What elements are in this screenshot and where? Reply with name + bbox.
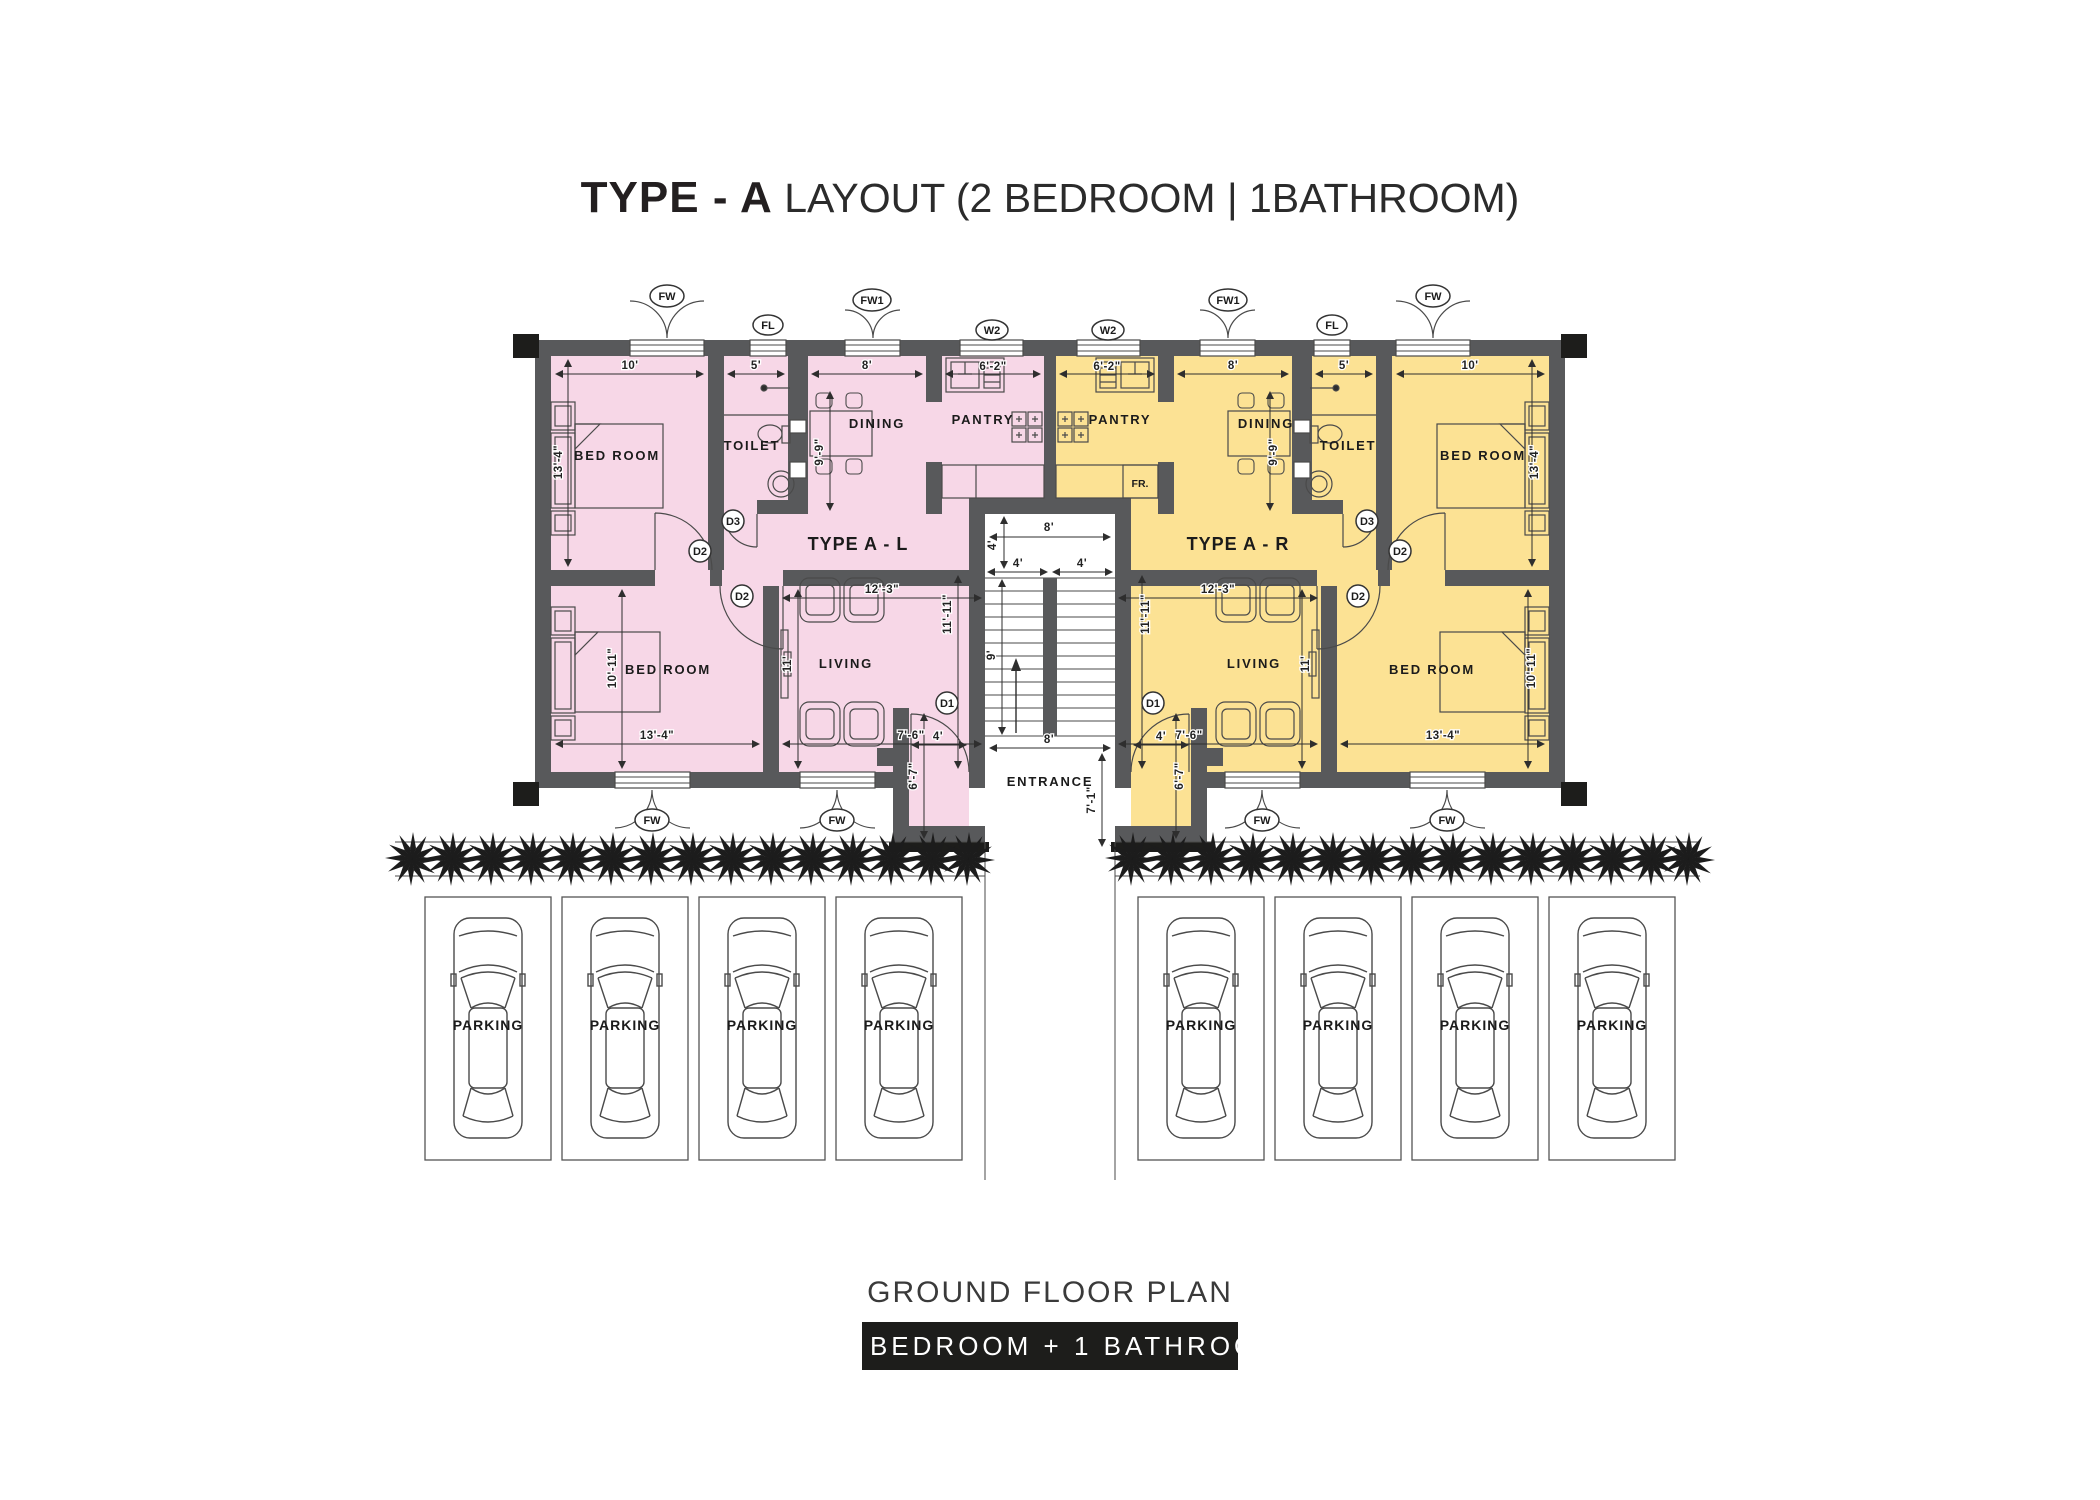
door-label-d1: D1: [1146, 698, 1160, 710]
dim-label: 10'-11": [607, 648, 619, 688]
dim-label: 7'-6": [897, 730, 924, 742]
door-label-d2: D2: [735, 591, 749, 603]
dim-label: 7'-6": [1175, 730, 1202, 742]
dim-label: 8': [862, 360, 872, 372]
room-label-pantry: PANTRY: [1089, 412, 1152, 427]
footer-badge-label: O2 BEDROOM + 1 BATHROOM: [816, 1331, 1284, 1361]
room-label-toilet: TOILET: [724, 438, 781, 453]
room-label-bedroom: BED ROOM: [1440, 448, 1526, 463]
dim-label: 4': [1077, 558, 1087, 570]
dim-label: 13'-4": [553, 445, 565, 479]
dim-label: 4': [1013, 558, 1023, 570]
dim-label: 6'-2": [979, 361, 1006, 373]
dim-label: 12'-3": [1201, 584, 1235, 596]
page-title: TYPE - A LAYOUT (2 BEDROOM | 1BATHROOM): [581, 173, 1520, 222]
dim-label: 10'-11": [1526, 648, 1538, 688]
window-label-fw: FW: [643, 815, 661, 827]
dim-label: 6'-7": [908, 762, 920, 789]
door-label-d1: D1: [940, 698, 954, 710]
door-label-d3: D3: [726, 516, 740, 528]
parking-label: PARKING: [864, 1017, 935, 1033]
room-label-living: LIVING: [819, 656, 873, 671]
room-label-bedroom: BED ROOM: [574, 448, 660, 463]
floor-plan-page: TYPE - A LAYOUT (2 BEDROOM | 1BATHROOM): [0, 0, 2100, 1500]
unit-left-label: TYPE A - L: [808, 534, 909, 554]
dim-label: 11': [782, 656, 794, 672]
window-label-fw: FW: [1438, 815, 1456, 827]
dim-label: 10': [621, 360, 638, 372]
dim-label: 8': [1228, 360, 1238, 372]
parking-label: PARKING: [453, 1017, 524, 1033]
window-label-fw: FW: [1253, 815, 1271, 827]
parking-label: PARKING: [727, 1017, 798, 1033]
dim-label: 10': [1461, 360, 1478, 372]
page-title-rest: LAYOUT (2 BEDROOM | 1BATHROOM): [773, 175, 1519, 221]
dim-label: 13'-4": [1426, 730, 1460, 742]
fridge-label: FR.: [1132, 478, 1149, 490]
room-label-bedroom: BED ROOM: [625, 662, 711, 677]
room-label-pantry: PANTRY: [952, 412, 1015, 427]
dim-label: 4': [987, 540, 999, 550]
room-label-living: LIVING: [1227, 656, 1281, 671]
dim-label: 11'-11": [1140, 594, 1152, 634]
dim-label: 4': [933, 731, 943, 743]
window-label-fw1: FW1: [1216, 295, 1239, 307]
dim-label: 6'-7": [1174, 762, 1186, 789]
parking-area: PARKING PARKING PARKING PARKING PARKING …: [425, 897, 1675, 1160]
parking-label: PARKING: [1303, 1017, 1374, 1033]
parking-label: PARKING: [590, 1017, 661, 1033]
door-label-d2: D2: [1351, 591, 1365, 603]
window-label-fw1: FW1: [860, 295, 883, 307]
door-label-d2: D2: [1393, 546, 1407, 558]
dim-label: 13'-4": [1529, 445, 1541, 479]
dim-label: 11': [1300, 656, 1312, 672]
dim-label: 6'-2": [1093, 361, 1120, 373]
window-label-fl: FL: [1325, 320, 1339, 332]
dim-label: 8': [1044, 734, 1054, 746]
dim-label: 13'-4": [640, 730, 674, 742]
window-label-fl: FL: [761, 320, 775, 332]
parking-label: PARKING: [1440, 1017, 1511, 1033]
dim-label: 9'-9": [1268, 438, 1280, 465]
dim-label: 7'-1": [1086, 786, 1098, 813]
dim-label: 4': [1156, 731, 1166, 743]
parking-label: PARKING: [1166, 1017, 1237, 1033]
staircase: [985, 578, 1115, 736]
floor-plan-svg: TYPE - A LAYOUT (2 BEDROOM | 1BATHROOM): [0, 0, 2100, 1500]
window-label-fw: FW: [658, 291, 676, 303]
window-label-w2: W2: [1100, 325, 1117, 337]
unit-right-label: TYPE A - R: [1187, 534, 1290, 554]
dim-label: 9': [986, 650, 998, 660]
dim-label: 12'-3": [865, 584, 899, 596]
room-label-dining: DINING: [1238, 416, 1294, 431]
footer-caption: GROUND FLOOR PLAN: [867, 1276, 1233, 1309]
room-label-dining: DINING: [849, 416, 905, 431]
window-label-fw: FW: [828, 815, 846, 827]
stair-stringer: [1043, 578, 1057, 736]
window-label-w2: W2: [984, 325, 1001, 337]
door-label-d3: D3: [1360, 516, 1374, 528]
dim-label: 9'-9": [814, 438, 826, 465]
landscape-strip: [385, 832, 1715, 1180]
page-title-bold: TYPE - A: [581, 173, 773, 222]
window-label-fw: FW: [1424, 291, 1442, 303]
dim-label: 11'-11": [942, 594, 954, 634]
dim-label: 8': [1044, 522, 1054, 534]
dim-label: 5': [751, 360, 761, 372]
door-label-d2: D2: [693, 546, 707, 558]
parking-label: PARKING: [1577, 1017, 1648, 1033]
room-label-bedroom: BED ROOM: [1389, 662, 1475, 677]
room-label-entrance: ENTRANCE: [1007, 774, 1094, 789]
dim-label: 5': [1339, 360, 1349, 372]
room-label-toilet: TOILET: [1320, 438, 1377, 453]
footer: GROUND FLOOR PLAN O2 BEDROOM + 1 BATHROO…: [816, 1276, 1284, 1370]
